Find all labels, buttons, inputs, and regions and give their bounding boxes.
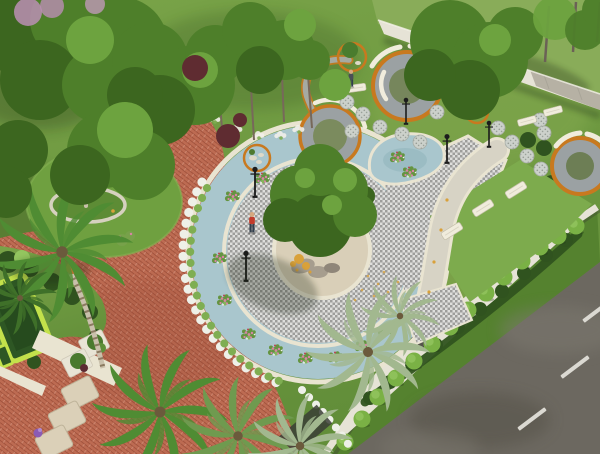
park-aerial-render — [0, 0, 600, 454]
bollard-light — [111, 209, 115, 213]
seating-circle-c — [552, 133, 600, 194]
park-scene-canvas — [0, 0, 600, 454]
